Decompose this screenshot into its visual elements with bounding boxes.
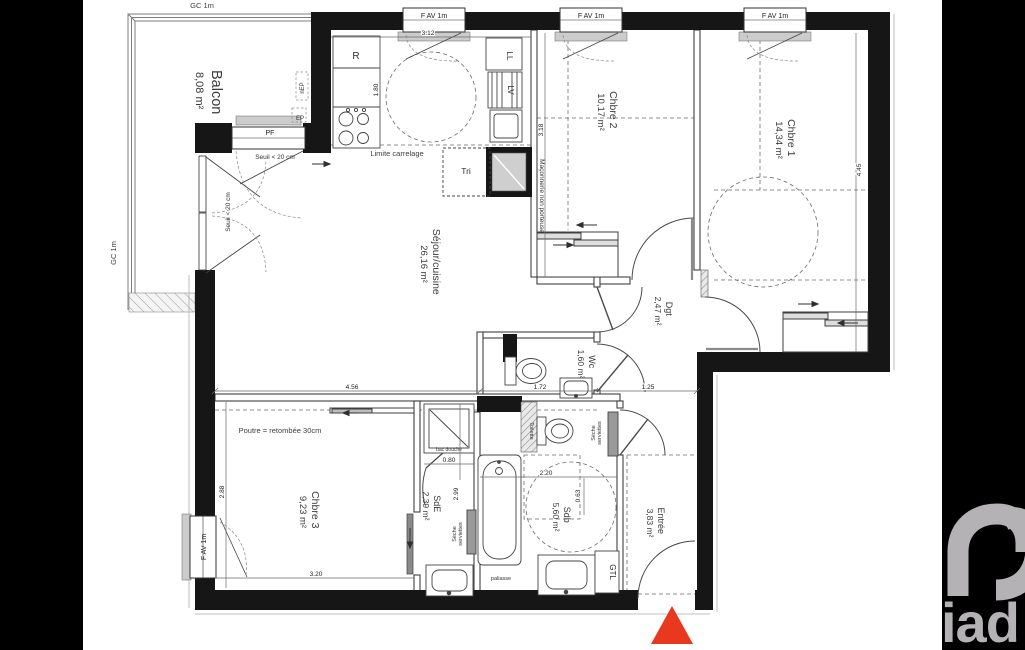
towel-radiator-sde (467, 510, 476, 554)
ep-label: EP (296, 116, 304, 122)
toilet-icon-sdb (537, 417, 573, 445)
tri-label: Tri (461, 166, 471, 176)
gc-left-label: GC 1m (109, 241, 118, 265)
dim-299: 2.99 (453, 487, 460, 500)
paliasse-label: paliasse (491, 576, 511, 582)
left-black-bar (0, 0, 83, 650)
towel-radiator-sdb (608, 412, 618, 456)
floor-plan-page: F AV 1m F AV 1m F AV 1m F AV 1m (0, 0, 1025, 650)
fridge-label: R (352, 51, 359, 62)
pf-label: PF (266, 130, 275, 137)
dishwasher-label: LV (506, 85, 515, 95)
dim-318: 3.18 (538, 123, 545, 136)
washing-machine-label: LL (505, 52, 514, 61)
room-label-chbre1: Chbre 1 14,34 m² (773, 119, 801, 161)
chbre1-door-stub (701, 270, 708, 297)
dim-063: 0.63 (575, 489, 582, 502)
washbasin-icon-wc (560, 378, 592, 398)
sink-icon (490, 110, 522, 142)
washing-machine-box (486, 38, 522, 70)
dim-220: 2.20 (540, 470, 553, 477)
closet-chbre3 (330, 408, 414, 413)
dim-320: 3.20 (310, 571, 323, 578)
gtl-label: GTL (608, 564, 617, 580)
balcony-edge-hatch (129, 293, 195, 312)
dim-180: 1.80 (373, 83, 380, 96)
bathtub-icon (478, 455, 521, 565)
seuil-left-label: Seuil < 20 cm (225, 192, 232, 232)
beam-label: Poutre = retombée 30cm (239, 426, 322, 435)
dim-125: 1.25 (642, 384, 655, 391)
window-3-label: F AV 1m (762, 13, 788, 20)
closet-chbre2 (537, 232, 618, 277)
shower-tray-icon (424, 404, 474, 453)
washbasin-icon-sde (426, 565, 473, 596)
dim-445: 4.45 (856, 163, 863, 176)
room-label-chbre2: Chbre 2 10,17 m² (595, 91, 623, 133)
room-label-chbre3: Chbre 3 9,23 m² (297, 491, 325, 533)
gc-top-label: GC 1m (190, 1, 214, 10)
toilette-label: Toilette (528, 422, 534, 439)
masonry-label: Maçonnerie non porteuse (538, 159, 545, 233)
washbasin-icon-sdb (538, 555, 595, 595)
nep-label: nEP (300, 82, 306, 93)
dishwasher-box (488, 72, 522, 108)
floor-plan-canvas: F AV 1m F AV 1m F AV 1m F AV 1m (0, 0, 1025, 650)
dim-080: 0.80 (443, 457, 456, 464)
iad-logo-text: iad (941, 591, 1019, 650)
shower-tray-label: bac douche (436, 447, 462, 453)
closet-chbre1 (783, 312, 868, 352)
dim-172: 1.72 (534, 384, 547, 391)
seuil-top-label: Seuil < 20 cm (255, 154, 295, 161)
window-1-label: F AV 1m (421, 13, 447, 20)
window-2-label: F AV 1m (578, 13, 604, 20)
tile-limit-label: Limite carrelage (370, 149, 423, 158)
toilet-icon-wc (505, 357, 546, 385)
window-left-label: F AV 1m (201, 534, 208, 560)
dim-288: 2.88 (219, 485, 226, 498)
dim-456: 4.56 (346, 384, 359, 391)
dim-312: 3.12 (422, 30, 435, 37)
